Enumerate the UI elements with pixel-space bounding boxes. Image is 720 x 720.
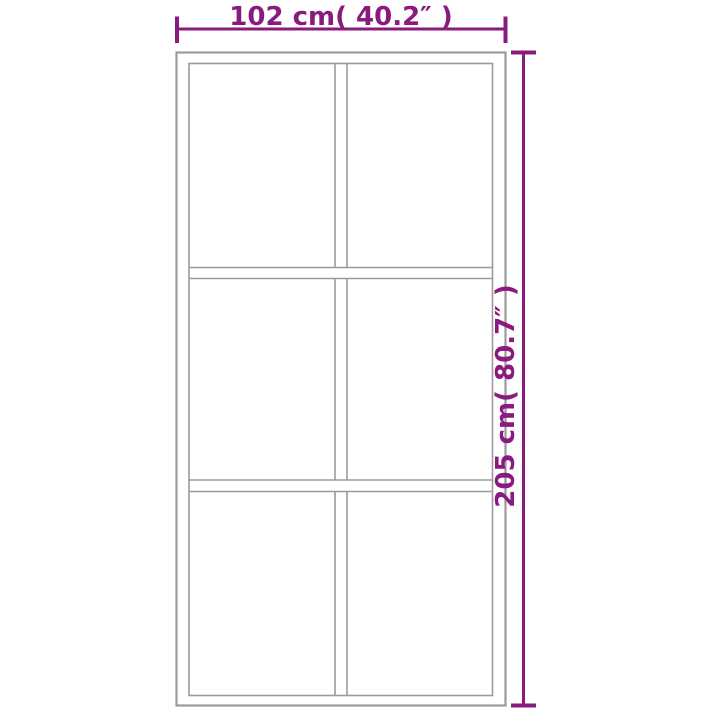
height-dimension: 205 cm( 80.7″ ) [491,53,536,706]
height-dimension-label: 205 cm( 80.7″ ) [491,284,521,507]
door-mullion [335,64,347,696]
product-dimension-diagram: 102 cm( 40.2″ ) 205 cm( 80.7″ ) [0,0,720,720]
width-dimension-label: 102 cm( 40.2″ ) [229,2,452,32]
door-inner-frame [189,64,493,696]
door-drawing [177,53,506,706]
door-rail-lower [189,480,493,492]
door-outer-frame [177,53,506,706]
diagram-svg: 102 cm( 40.2″ ) 205 cm( 80.7″ ) [0,0,720,720]
width-dimension: 102 cm( 40.2″ ) [177,2,506,43]
door-rail-upper [189,268,493,279]
